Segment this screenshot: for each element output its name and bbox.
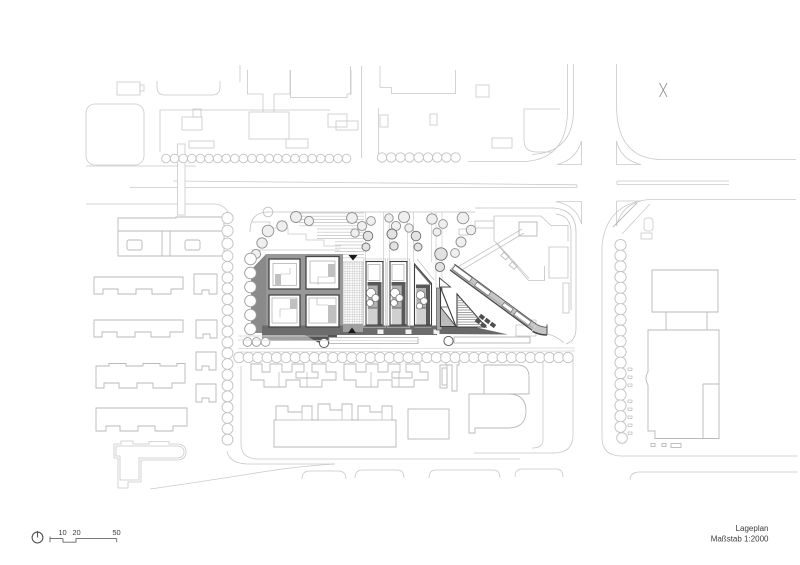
svg-text:Maßstab 1:2000: Maßstab 1:2000 xyxy=(711,534,769,543)
svg-text:Lageplan: Lageplan xyxy=(736,524,769,533)
svg-text:10: 10 xyxy=(58,528,66,537)
svg-text:50: 50 xyxy=(112,528,120,537)
svg-text:20: 20 xyxy=(72,528,80,537)
